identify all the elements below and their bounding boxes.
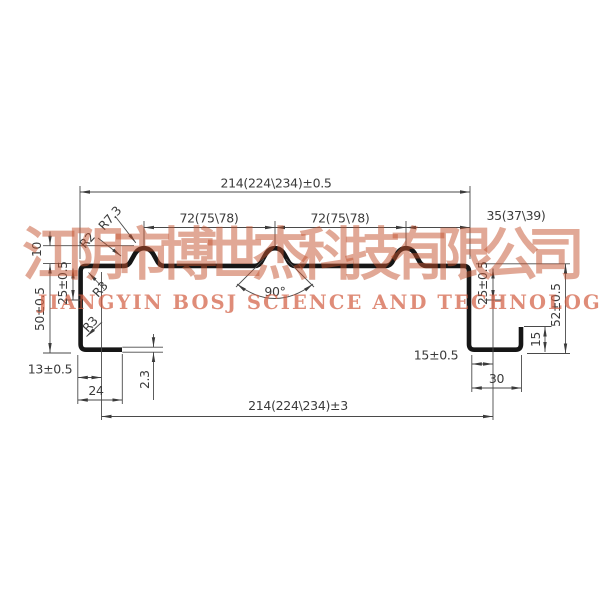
dim-text-overall-width-top: 214(224\234)±0.5: [220, 176, 331, 191]
dim-text-radius-crest: R7.3: [96, 204, 124, 233]
leader-radius-base: [98, 238, 121, 256]
dim-text-left-foot-outer: 24: [88, 383, 104, 398]
dim-text-overall-width-bottom: 214(224\234)±3: [248, 398, 348, 413]
dim-text-radius-corner-bottom: R3: [80, 314, 101, 335]
dim-text-pitch-right: 72(75\78): [311, 211, 370, 226]
drawing-sheet: 214(224\234)±0.5 72(75\78) 72(75\78) 35(…: [0, 0, 600, 600]
dim-text-radius-corner-top: R3: [90, 279, 111, 300]
dim-thickness: [122, 334, 163, 400]
dim-text-rib-angle: 90°: [264, 284, 285, 299]
profile-outline: [81, 248, 521, 350]
profile-drawing-canvas: 214(224\234)±0.5 72(75\78) 72(75\78) 35(…: [0, 0, 600, 600]
dim-text-right-foot-inner: 15±0.5: [414, 348, 458, 363]
dim-text-rib-height: 10: [30, 242, 44, 257]
dim-text-right-foot-width: 30: [489, 371, 505, 386]
leader-radius-crest: [115, 216, 136, 243]
dim-text-thickness: 2.3: [138, 370, 152, 389]
dim-text-right-offset: 25±0.5: [476, 261, 490, 305]
dim-text-right-lip: 15: [529, 332, 543, 347]
dim-text-right-end-width: 35(37\39): [487, 208, 546, 223]
dim-text-left-height: 50±0.5: [33, 287, 47, 331]
dim-text-left-offset: 25±0.5: [56, 261, 70, 305]
dim-text-left-foot: 13±0.5: [28, 362, 72, 377]
dim-text-pitch-left: 72(75\78): [180, 211, 239, 226]
dim-text-right-height: 52±0.5: [549, 283, 563, 327]
